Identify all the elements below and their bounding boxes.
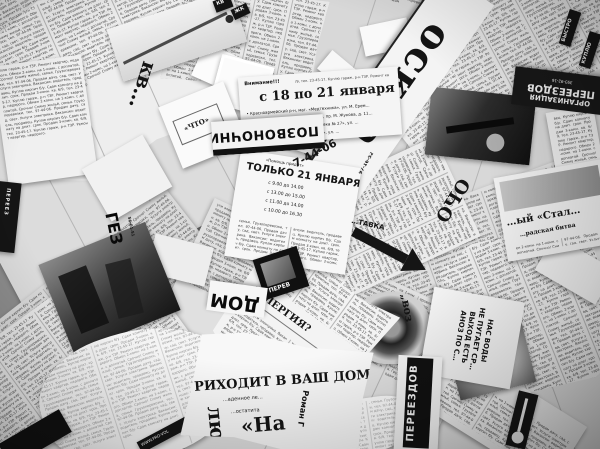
newsprint-column: 97-44-06. Продам дачу, сад, свет. Услуги… [561,230,600,246]
scrap-left-table: уплю гараж, р-н ТЗР. Ремонт квартир, нед… [0,54,98,185]
dom-text: ДОМ [209,289,260,315]
newsprint-column: ен 2-комн. на 1-комн. с доплатой. Срочно… [514,239,560,255]
pereez-left-text: ПЕРЕЕЗ [2,188,10,216]
thermometer-tube [517,398,528,432]
thermometer-bulb [510,430,525,445]
gun-image [446,117,514,133]
pereezdov-vert-text: ПЕРЕЕЗДОВ [403,357,434,448]
kv-chip1-text: КВ [216,0,225,7]
kv-chip2-text: ЖК [234,6,245,15]
gez-text: ГЕЗ [102,211,125,246]
newsprint-column: уплю гараж, р-н ТЗР. Ремонт квартир, нед… [0,58,95,183]
lu-big-text: лю [204,405,229,442]
roman-text: Роман Г [295,390,309,428]
sched4-text: с 10.00 до 16.30 [263,208,302,219]
attention-text: Внимание!!! [244,80,280,88]
chip-photo [260,255,296,287]
dates-headline-text: с 18 по 21 января [259,82,395,105]
newsprint-columns: уплю гараж, р-н ТЗР. Ремонт квартир, нед… [0,54,98,185]
photo-highlight [485,133,505,153]
prihodit-text: РИХОДИТ В ВАШ ДОМ [194,369,371,395]
na-big-text: «На [240,412,286,437]
newspaper-collage: омн. кв. 6/9, тел. 23-45-17. Куплю гараж… [0,0,600,449]
photo-figure [58,265,109,334]
scrap-stal: …ый «Стал……радская битваен 2-комн. на 1-… [493,159,600,262]
prihodit-sub1-text: …аденное ле… [223,395,263,403]
gez-phone-text: 56-01-51 [127,216,135,236]
scrap-voz: „воз [370,293,417,343]
pozvonochnik-text: ПОЗВОНОЧНИК [211,123,319,145]
scrap-pereezdov-strip: ПЕРЕЕЗДОВ [394,355,443,449]
